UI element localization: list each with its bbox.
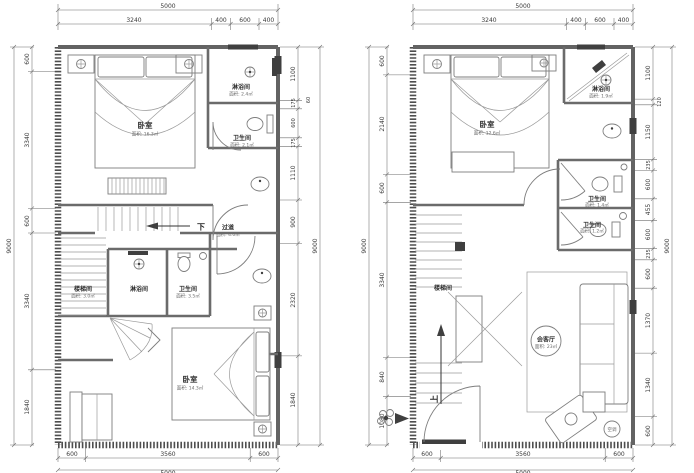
side-table — [583, 392, 605, 412]
radiator-box — [108, 178, 166, 194]
basin-faucet — [611, 127, 613, 129]
dim-label: 1840 — [290, 392, 297, 407]
window-sill — [228, 45, 258, 50]
dim-label: 175 — [291, 98, 297, 108]
ceiling-lamp-icon — [254, 422, 271, 436]
stairs-down — [60, 207, 178, 360]
toilet-tank — [614, 176, 622, 192]
pillow — [98, 57, 144, 77]
dim-label: 840 — [379, 371, 386, 383]
bed-outline — [172, 328, 270, 420]
double-bed — [451, 55, 549, 168]
dim-label: 400 — [215, 17, 227, 24]
entry-arrow — [395, 413, 409, 424]
washbasin-icon — [603, 124, 621, 138]
floor-plan-sheet: 5000 3240 400 600 400 9000 600 3340 600 … — [0, 0, 694, 473]
dim-label: 3340 — [24, 132, 31, 147]
shower-dot — [605, 79, 607, 81]
stair-landing — [456, 296, 482, 362]
double-bed — [95, 55, 195, 168]
towel-rail — [272, 58, 277, 76]
room-label-shower: 淋浴间 — [232, 83, 250, 91]
washbasin-icon — [251, 177, 269, 191]
dim-label: 5000 — [160, 3, 175, 10]
winder-steps — [110, 318, 152, 360]
dim-label: 2320 — [290, 292, 297, 307]
dim-note: 60 — [306, 97, 312, 103]
dim-label: 5000 — [515, 3, 530, 10]
ac-label: 空调 — [608, 426, 617, 433]
dim-label: 600 — [645, 229, 652, 241]
floor-plans-drawing: 5000 3240 400 600 400 9000 600 3340 600 … — [0, 0, 694, 473]
room-area: 面积: 3.0㎡ — [71, 293, 95, 300]
arrow-head — [146, 223, 158, 230]
stairs-up — [415, 215, 522, 404]
dim-label: 1840 — [24, 399, 31, 414]
dim-label: 600 — [24, 53, 31, 65]
small-basin — [200, 253, 207, 260]
room-label-toilet-1: 卫生间 — [588, 195, 606, 203]
toilet-bowl — [178, 257, 190, 272]
left-plan-labels: 卧室 面积: 16.3㎡ 淋浴间 面积: 2.4㎡ 卫生间 面积: 2.1㎡ 下… — [71, 83, 254, 392]
dimension-ticks — [12, 8, 322, 472]
stair-treads — [98, 207, 178, 231]
door-arc — [217, 236, 255, 274]
exhaust-fan — [621, 164, 627, 170]
dim-label: 600 — [613, 451, 625, 458]
dim-label: 9000 — [6, 238, 13, 253]
entry-door-arc — [424, 386, 480, 442]
room-label-toilet-2: 卫生间 — [583, 221, 601, 229]
bed-cover-lines — [451, 79, 549, 135]
sofa-back — [70, 392, 82, 442]
floor-plan-right: 5000 3240 400 600 400 9000 600 2140 600 … — [361, 3, 676, 473]
room-label-shower-mid: 淋浴间 — [130, 285, 148, 293]
dim-label: 3240 — [126, 17, 141, 24]
pillow — [256, 332, 269, 372]
room-area: 面积: 23㎡ — [535, 343, 558, 350]
room-label-bedroom-bottom: 卧室 — [183, 374, 198, 384]
radiator-fins — [112, 178, 164, 194]
dim-label: 600 — [291, 118, 297, 128]
dim-label: 9000 — [312, 238, 319, 253]
double-bed-bottom — [172, 328, 270, 420]
shower-icon — [245, 58, 277, 77]
room-label-bedroom: 卧室 — [480, 119, 495, 129]
wall-niche — [630, 300, 637, 314]
pillow — [501, 57, 546, 77]
dim-note: 120 — [657, 97, 663, 107]
pillow — [256, 376, 269, 416]
room-label-living: 会客厅 — [537, 336, 555, 344]
room-label-toilet: 卫生间 — [233, 134, 251, 142]
room-area: 面积: 12.6㎡ — [474, 130, 501, 137]
bed-cover-lines — [214, 328, 254, 420]
dim-label: 1100 — [290, 66, 297, 81]
dim-label: 400 — [618, 17, 630, 24]
down-arrow — [146, 223, 190, 230]
room-label-stairwell: 楼梯间 — [434, 284, 452, 292]
dim-label: 600 — [379, 55, 386, 67]
dim-label: 235 — [646, 160, 652, 170]
up-annotation: 上 — [429, 395, 439, 403]
dim-label: 3340 — [379, 272, 386, 287]
dim-label: 1110 — [290, 165, 297, 180]
washbasin-icon — [253, 269, 271, 283]
stair-flight-lines — [60, 238, 106, 315]
door-arc-toilet2 — [561, 212, 583, 245]
exterior-wall — [58, 47, 278, 445]
dim-label: 600 — [66, 451, 78, 458]
sofa — [70, 392, 112, 442]
ceiling-lamp-icon — [254, 306, 271, 320]
dim-label: 3560 — [160, 451, 175, 458]
dim-label: 1150 — [645, 124, 652, 139]
room-area: 面积: 14.3㎡ — [177, 385, 204, 392]
dim-label: 600 — [645, 425, 652, 437]
dim-label: 9000 — [664, 238, 671, 253]
toilet-icon — [247, 115, 273, 133]
stair-treads — [415, 215, 462, 403]
shower-icon-mid — [128, 251, 148, 269]
room-label-shower: 淋浴间 — [592, 85, 610, 93]
room-area: 面积: 2.1㎡ — [230, 142, 254, 149]
window-sill — [577, 45, 605, 50]
dim-label: 600 — [645, 268, 652, 280]
room-area: 面积: 16.3㎡ — [132, 131, 159, 138]
room-label-corridor: 过道 — [222, 224, 234, 232]
dim-label: 1340 — [645, 377, 652, 392]
dim-label: 2140 — [379, 116, 386, 131]
dim-label: 600 — [421, 451, 433, 458]
dim-label: 1100 — [645, 65, 652, 80]
room-area: 面积: 1.4㎡ — [585, 202, 609, 209]
shower-screen — [128, 251, 148, 255]
dim-label: 600 — [239, 17, 251, 24]
toilet-icon-1 — [592, 164, 627, 192]
sofa — [580, 284, 628, 404]
door-arc — [524, 169, 560, 205]
sofa-body — [580, 284, 628, 404]
dim-label: 3240 — [481, 17, 496, 24]
plant-center — [384, 416, 388, 420]
entry-door-leaf — [422, 440, 466, 445]
floor-plan-left: 5000 3240 400 600 400 9000 600 3340 600 … — [6, 3, 324, 473]
down-annotation: 下 — [197, 223, 205, 232]
room-area: 面积: 3.5㎡ — [176, 293, 200, 300]
desk — [452, 152, 514, 172]
ceiling-lamp-icon — [424, 55, 450, 73]
room-label-toilet-mid: 卫生间 — [179, 285, 197, 293]
dim-label: 600 — [24, 215, 31, 227]
basin-faucet — [259, 180, 261, 182]
room-area: 面积: 1.2㎡ — [580, 228, 604, 235]
wall-niche — [630, 118, 637, 134]
dim-label: 3560 — [515, 451, 530, 458]
room-area: 面积: 2.4㎡ — [229, 91, 253, 98]
dim-label: 600 — [258, 451, 270, 458]
radiator — [108, 178, 166, 194]
toilet-bowl — [247, 118, 263, 131]
dim-label: 900 — [290, 216, 297, 228]
dim-label: 235 — [646, 249, 652, 259]
toilet-icon-mid — [178, 253, 207, 272]
hatched-wall — [58, 47, 278, 445]
dim-label: 1370 — [645, 313, 652, 328]
dim-label: 9000 — [361, 238, 368, 253]
exhaust-fan — [620, 213, 627, 220]
dim-label: 400 — [570, 17, 582, 24]
pillow — [454, 57, 499, 77]
shower-dot — [249, 71, 251, 73]
dim-label: 3340 — [24, 293, 31, 308]
room-label-stairwell: 楼梯间 — [74, 285, 92, 293]
newel-post — [455, 242, 465, 251]
shower-dot — [138, 263, 140, 265]
toilet-bowl — [592, 177, 608, 191]
dim-label: 600 — [379, 182, 386, 194]
dim-label: 600 — [645, 179, 652, 191]
dim-label: 455 — [645, 204, 652, 216]
ceiling-lamp-icon — [68, 55, 94, 73]
dim-label: 400 — [263, 17, 275, 24]
toilet-tank — [267, 115, 273, 133]
door-arc-toilet1 — [561, 163, 585, 200]
room-area: 面积: 1.9㎡ — [589, 93, 613, 100]
basin-faucet — [261, 272, 263, 274]
petal — [387, 410, 394, 417]
up-arrow-head — [437, 324, 445, 336]
toilet-tank — [612, 222, 620, 237]
dim-label: 600 — [594, 17, 606, 24]
room-label-bedroom: 卧室 — [138, 120, 153, 130]
room-area: 面积: 4.0㎡ — [216, 231, 240, 238]
dim-label: 175 — [291, 138, 297, 148]
